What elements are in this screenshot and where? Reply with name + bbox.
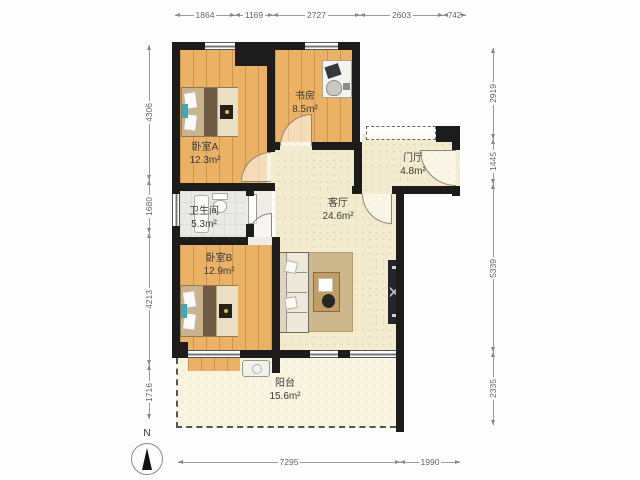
window-living-balcony xyxy=(310,350,338,358)
wall-entrance-bottom xyxy=(392,186,460,194)
sofa-seam xyxy=(287,292,307,293)
dimension-top-1: 1864 xyxy=(175,9,235,21)
bed-b xyxy=(180,285,238,337)
compass-needle xyxy=(142,448,152,470)
room-area: 12.3m² xyxy=(165,154,245,167)
dimension-right-3: 5339 xyxy=(487,184,499,352)
bed-a xyxy=(181,87,238,137)
toilet-tank xyxy=(212,193,228,200)
floor-patch xyxy=(248,237,272,245)
washing-machine xyxy=(242,360,270,377)
wall-bedroom-b-bottom xyxy=(240,350,272,358)
dimension-left-4: 1716 xyxy=(143,365,155,419)
label-living: 客厅 24.6m² xyxy=(298,197,378,223)
tv-dot xyxy=(224,309,228,313)
window-bedroom-a xyxy=(205,42,235,50)
wall-bedroom-b-living xyxy=(272,245,280,358)
label-study: 书房 8.5m² xyxy=(265,90,345,116)
label-bedroom-a: 卧室A 12.3m² xyxy=(165,141,245,167)
dimension-bottom-2: 1990 xyxy=(400,456,460,468)
dimension-left-2: 1680 xyxy=(143,180,155,233)
room-name: 书房 xyxy=(265,90,345,103)
bed-tv xyxy=(219,304,232,318)
wall-living-balcony xyxy=(272,350,310,358)
dimension-right-2: 1445 xyxy=(487,139,499,184)
wall-corner-block xyxy=(436,126,460,142)
accent-pillow xyxy=(182,104,188,118)
wall-right xyxy=(396,194,404,432)
room-name: 阳台 xyxy=(245,377,325,390)
monitor xyxy=(324,63,341,79)
floor-balcony-threshold xyxy=(188,358,240,371)
floor-living-upper xyxy=(275,150,354,194)
wall-study-bottom xyxy=(312,142,360,150)
dimension-right-1: 2919 xyxy=(487,48,499,139)
table-kettle xyxy=(322,294,335,308)
bed-blanket xyxy=(203,286,216,336)
wall-study-bottom xyxy=(267,142,280,150)
sofa-seam xyxy=(287,312,307,313)
desk-item xyxy=(343,83,350,90)
wall-bedroom-b-top xyxy=(272,237,280,245)
dimension-top-3: 2727 xyxy=(273,9,360,21)
wall-living-balcony xyxy=(338,350,350,358)
washer-drum xyxy=(252,364,262,374)
dimension-top-4: 2603 xyxy=(360,9,443,21)
sofa xyxy=(279,252,309,333)
window-living-balcony xyxy=(350,350,396,358)
tv-dot xyxy=(225,110,229,114)
wall-study-right xyxy=(352,42,360,150)
bed-blanket xyxy=(204,88,217,136)
table-paper xyxy=(318,278,333,292)
dimension-bottom-1: 7295 xyxy=(178,456,400,468)
room-area: 5.3m² xyxy=(165,218,243,231)
window-bedroom-b-balcony xyxy=(188,350,240,358)
room-name: 卧室A xyxy=(165,141,245,154)
room-area: 4.8m² xyxy=(373,165,453,178)
wall-bathroom-right xyxy=(246,191,254,196)
label-entrance: 门厅 4.8m² xyxy=(373,152,453,178)
floor-plan: 卧室A 12.3m² 书房 8.5m² 门厅 4.8m² 客厅 24.6m² 卫… xyxy=(0,0,640,480)
wall-bathroom-right xyxy=(246,224,254,237)
label-balcony: 阳台 15.6m² xyxy=(245,377,325,403)
wall-bedroom-a-bottom xyxy=(172,183,275,191)
entrance-closet-dashed xyxy=(366,126,436,140)
label-bedroom-b: 卧室B 12.9m² xyxy=(179,252,259,278)
wall-entrance-bottom xyxy=(352,186,362,194)
room-area: 8.5m² xyxy=(265,103,345,116)
dimension-left-3: 4213 xyxy=(143,233,155,365)
wall-pier xyxy=(235,42,267,66)
room-name: 客厅 xyxy=(298,197,378,210)
room-name: 卫生间 xyxy=(165,205,243,218)
dimension-right-4: 2335 xyxy=(487,352,499,425)
wall-entrance-right xyxy=(452,142,460,150)
sofa-pillow xyxy=(284,296,298,310)
label-bathroom: 卫生间 5.3m² xyxy=(165,205,243,231)
wall-bedroom-b-top xyxy=(172,237,248,245)
wall-stub xyxy=(272,358,280,373)
room-area: 12.9m² xyxy=(179,265,259,278)
window-study xyxy=(305,42,338,50)
wall-pier xyxy=(172,342,188,358)
dimension-top-5: 742 xyxy=(443,9,466,21)
coffee-table xyxy=(313,272,340,312)
room-area: 24.6m² xyxy=(298,210,378,223)
compass-icon xyxy=(131,443,163,475)
room-name: 门厅 xyxy=(373,152,453,165)
bed-tv xyxy=(220,105,233,119)
dimension-top-2: 1169 xyxy=(235,9,273,21)
floor-patch xyxy=(362,186,392,194)
dimension-left-1: 4306 xyxy=(143,45,155,180)
room-name: 卧室B xyxy=(179,252,259,265)
room-area: 15.6m² xyxy=(245,390,325,403)
wall-left xyxy=(172,42,180,194)
accent-pillow xyxy=(181,304,187,318)
compass-north-label: N xyxy=(138,428,156,439)
